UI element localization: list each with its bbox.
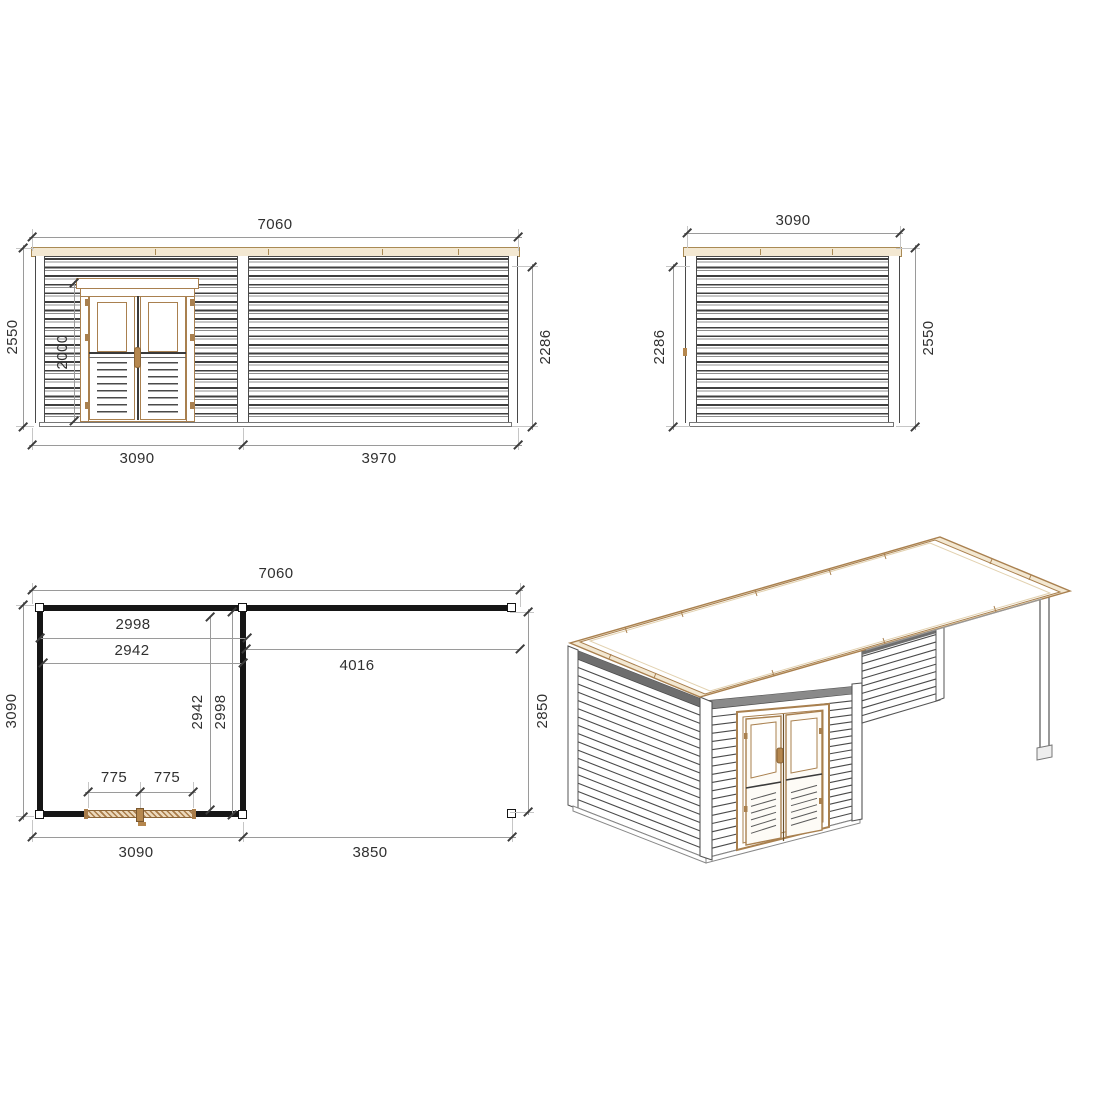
door-window-left	[97, 302, 127, 352]
dim-door-leaf-right: 775	[139, 770, 195, 786]
dim-plan-depth-left: 3090	[4, 683, 20, 739]
dim-front-module-left: 3090	[109, 451, 165, 467]
door-handle-icon	[134, 347, 141, 368]
dim-room-outer-width: 3090	[108, 845, 164, 861]
dim-room-clear-width: 2942	[104, 643, 160, 659]
dim-room-inner-width: 2998	[105, 617, 161, 633]
dim-plan-total-width: 7060	[248, 566, 304, 582]
door-louvers-right	[148, 362, 178, 416]
front-wall-siding-right	[247, 258, 508, 421]
side-corner-trim-left	[685, 256, 697, 423]
dim-room-clear-depth: 2942	[190, 684, 206, 740]
plan-wall-top	[37, 605, 246, 611]
dim-side-width: 3090	[765, 213, 821, 229]
front-corner-trim-right	[508, 256, 518, 423]
dim-front-module-right: 3970	[351, 451, 407, 467]
side-wall-siding	[695, 258, 888, 421]
dim-door-leaf-left: 775	[86, 770, 142, 786]
dim-terrace-inner-width: 4016	[329, 658, 385, 674]
dim-front-total-width: 7060	[247, 217, 303, 233]
front-module-divider-trim	[237, 256, 249, 423]
side-corner-trim-right	[888, 256, 900, 423]
isometric-view	[540, 515, 1100, 900]
front-foundation	[39, 422, 512, 427]
dim-front-height: 2550	[5, 309, 21, 365]
dim-side-wall-height: 2286	[652, 319, 668, 375]
dim-side-total-height: 2550	[921, 310, 937, 366]
dim-front-wall-height: 2286	[538, 319, 554, 375]
plan-terrace-beam	[246, 605, 511, 611]
dim-terrace-outer-width: 3850	[342, 845, 398, 861]
plan-door-leaf-right	[143, 810, 193, 818]
front-corner-trim-left	[35, 256, 45, 423]
side-foundation	[689, 422, 894, 427]
iso-door	[737, 704, 829, 850]
door-louvers-left	[97, 362, 127, 416]
plan-door-latch	[136, 808, 144, 822]
dim-room-inner-depth: 2998	[213, 684, 229, 740]
plan-wall-bottom-left	[37, 811, 85, 817]
dim-door-height: 2000	[55, 324, 71, 380]
side-latch-mark	[683, 348, 687, 356]
plan-door-leaf-left	[87, 810, 137, 818]
door-window-right	[148, 302, 178, 352]
technical-drawing-sheet: 7060 2550 2000 2286 3090 3970	[0, 0, 1100, 1100]
